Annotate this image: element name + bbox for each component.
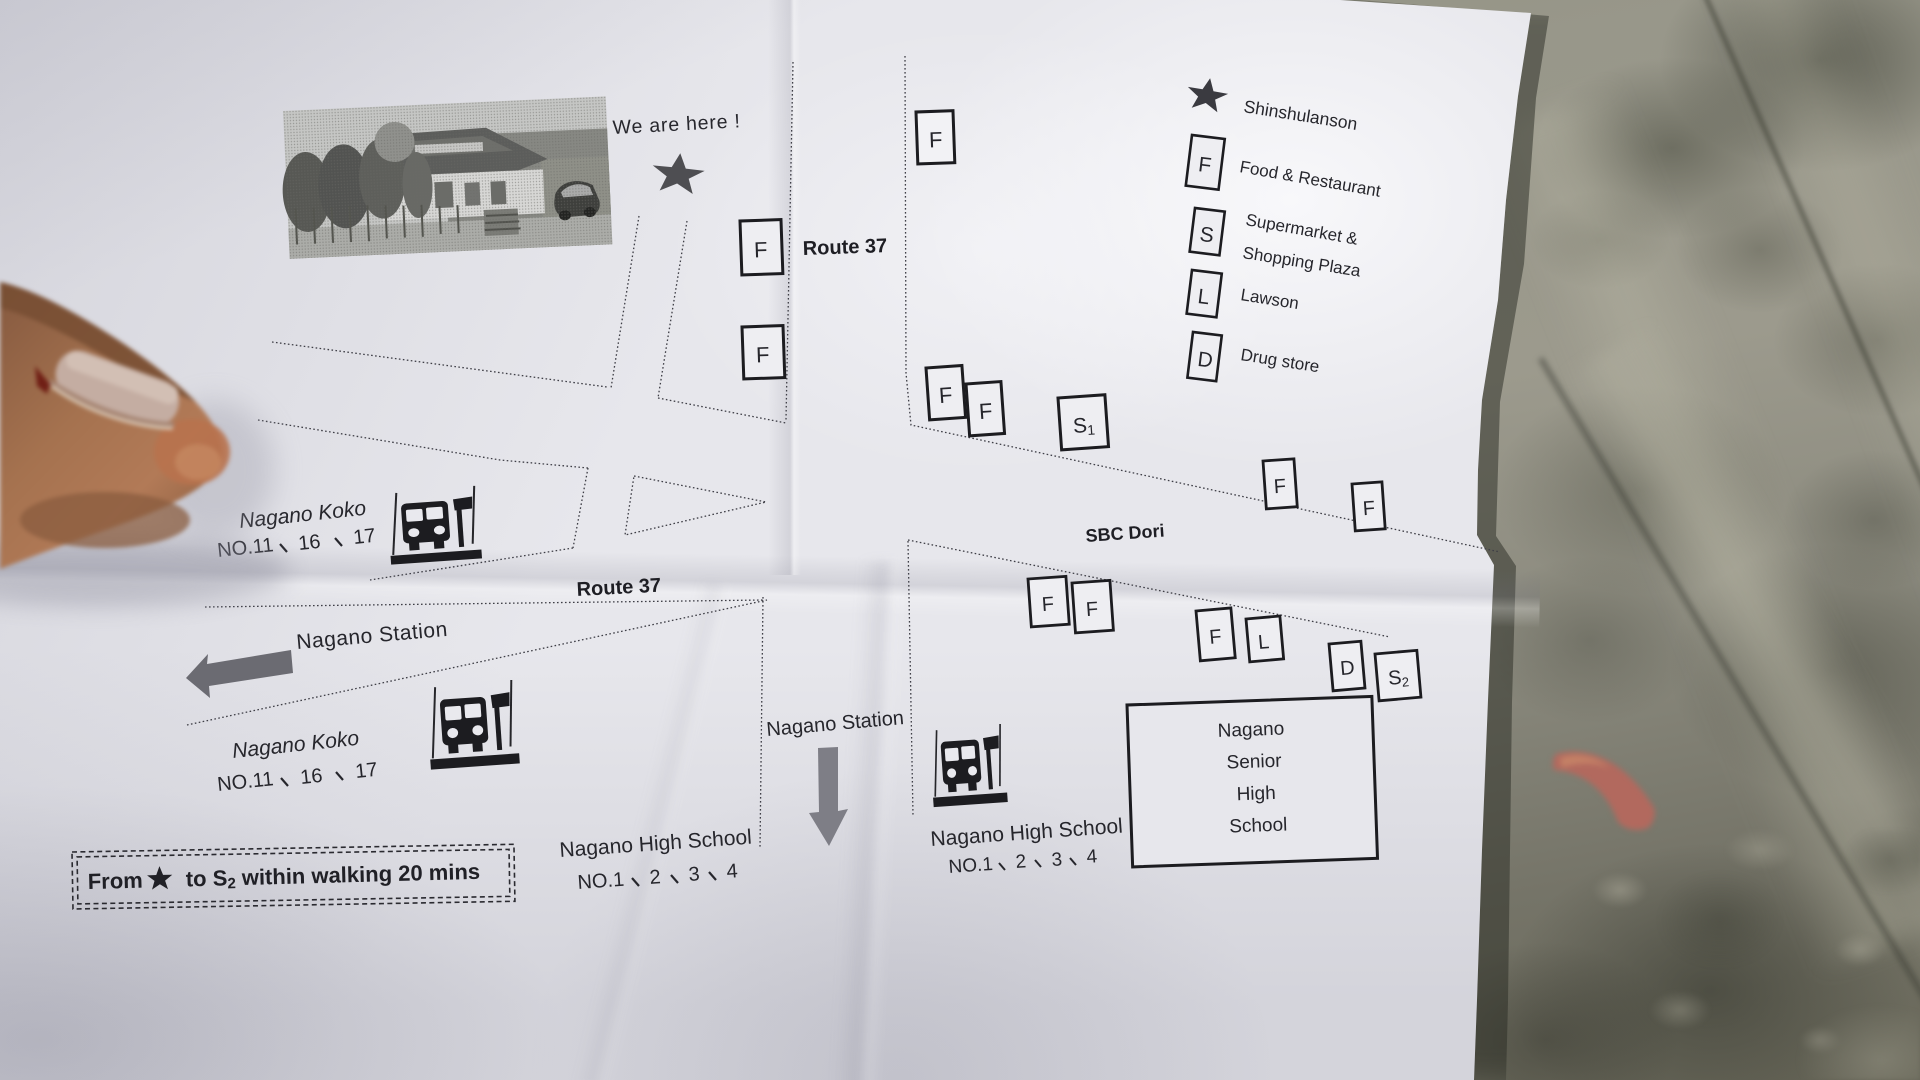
svg-text:F: F <box>1041 593 1055 616</box>
svg-text:4: 4 <box>726 860 739 883</box>
svg-text:Lawson: Lawson <box>1239 285 1300 313</box>
svg-text:Shopping Plaza: Shopping Plaza <box>1241 243 1362 280</box>
svg-text:SBC Dori: SBC Dori <box>1085 521 1165 546</box>
svg-text:Route 37: Route 37 <box>576 575 662 601</box>
svg-text:From: From <box>87 868 143 894</box>
svg-text:Supermarket &: Supermarket & <box>1244 210 1360 249</box>
svg-text:D: D <box>1339 657 1355 680</box>
svg-text:Shinshulanson: Shinshulanson <box>1242 96 1359 134</box>
svg-text:F: F <box>1273 475 1287 498</box>
svg-text:Food & Restaurant: Food & Restaurant <box>1238 157 1382 201</box>
svg-text:F: F <box>754 237 768 262</box>
svg-text:F: F <box>1362 497 1376 520</box>
svg-text:NO.1: NO.1 <box>948 854 994 878</box>
svg-text:F: F <box>1085 598 1099 621</box>
svg-text:School: School <box>1229 814 1288 837</box>
svg-text:NO.11: NO.11 <box>216 768 274 796</box>
svg-text:3: 3 <box>1051 849 1063 871</box>
svg-text:We are here !: We are here ! <box>612 110 741 139</box>
svg-text:Nagano Koko: Nagano Koko <box>231 727 360 763</box>
svg-text:F: F <box>978 398 993 424</box>
svg-text:to S2 within walking 20 mins: to S2 within walking 20 mins <box>185 859 480 894</box>
svg-text:D: D <box>1196 348 1214 373</box>
svg-text:Nagano High School: Nagano High School <box>559 826 753 862</box>
svg-text:16: 16 <box>299 765 323 789</box>
svg-text:L: L <box>1257 631 1270 654</box>
svg-text:NO.1: NO.1 <box>577 869 625 894</box>
svg-text:Senior: Senior <box>1226 751 1282 774</box>
svg-text:17: 17 <box>354 759 378 783</box>
svg-text:F: F <box>929 127 943 152</box>
svg-text:4: 4 <box>1086 846 1098 868</box>
svg-text:F: F <box>756 342 770 367</box>
svg-text:Nagano: Nagano <box>1217 719 1284 742</box>
svg-text:S: S <box>1198 223 1215 248</box>
svg-text:2: 2 <box>649 866 662 889</box>
svg-text:Nagano Station: Nagano Station <box>766 707 905 741</box>
svg-text:2: 2 <box>1015 851 1027 873</box>
svg-text:3: 3 <box>688 863 701 886</box>
svg-text:Drug store: Drug store <box>1239 345 1320 376</box>
svg-text:High: High <box>1236 783 1276 805</box>
svg-text:F: F <box>1208 626 1222 649</box>
svg-text:F: F <box>938 382 953 408</box>
svg-text:Route 37: Route 37 <box>802 235 887 260</box>
